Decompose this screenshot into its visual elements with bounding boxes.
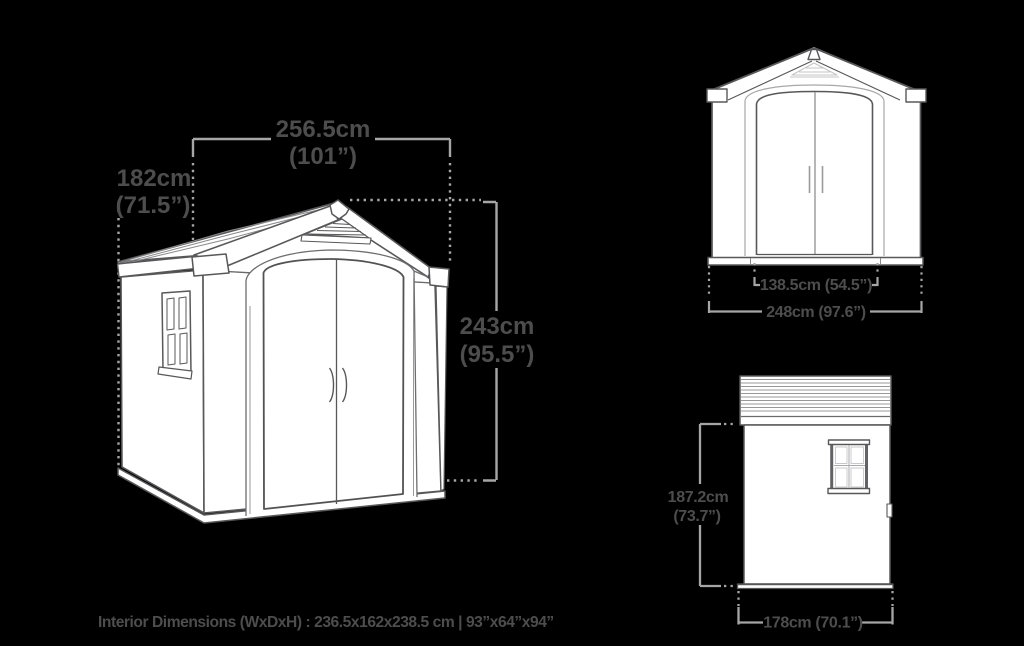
svg-text:(95.5”): (95.5”)	[460, 341, 535, 368]
svg-text:Interior Dimensions (WxDxH) :: Interior Dimensions (WxDxH) : 236.5x162x…	[98, 614, 554, 631]
svg-text:178cm (70.1”): 178cm (70.1”)	[763, 615, 863, 632]
svg-text:187.2cm: 187.2cm	[668, 489, 729, 506]
svg-text:(71.5”): (71.5”)	[116, 192, 191, 219]
svg-text:256.5cm: 256.5cm	[276, 116, 371, 143]
svg-text:243cm: 243cm	[460, 313, 535, 340]
svg-text:182cm: 182cm	[117, 165, 192, 192]
svg-text:248cm (97.6”): 248cm (97.6”)	[766, 304, 866, 321]
svg-text:138.5cm (54.5”): 138.5cm (54.5”)	[760, 277, 872, 294]
svg-text:(73.7”): (73.7”)	[673, 508, 720, 525]
svg-text:(101”): (101”)	[289, 143, 357, 170]
